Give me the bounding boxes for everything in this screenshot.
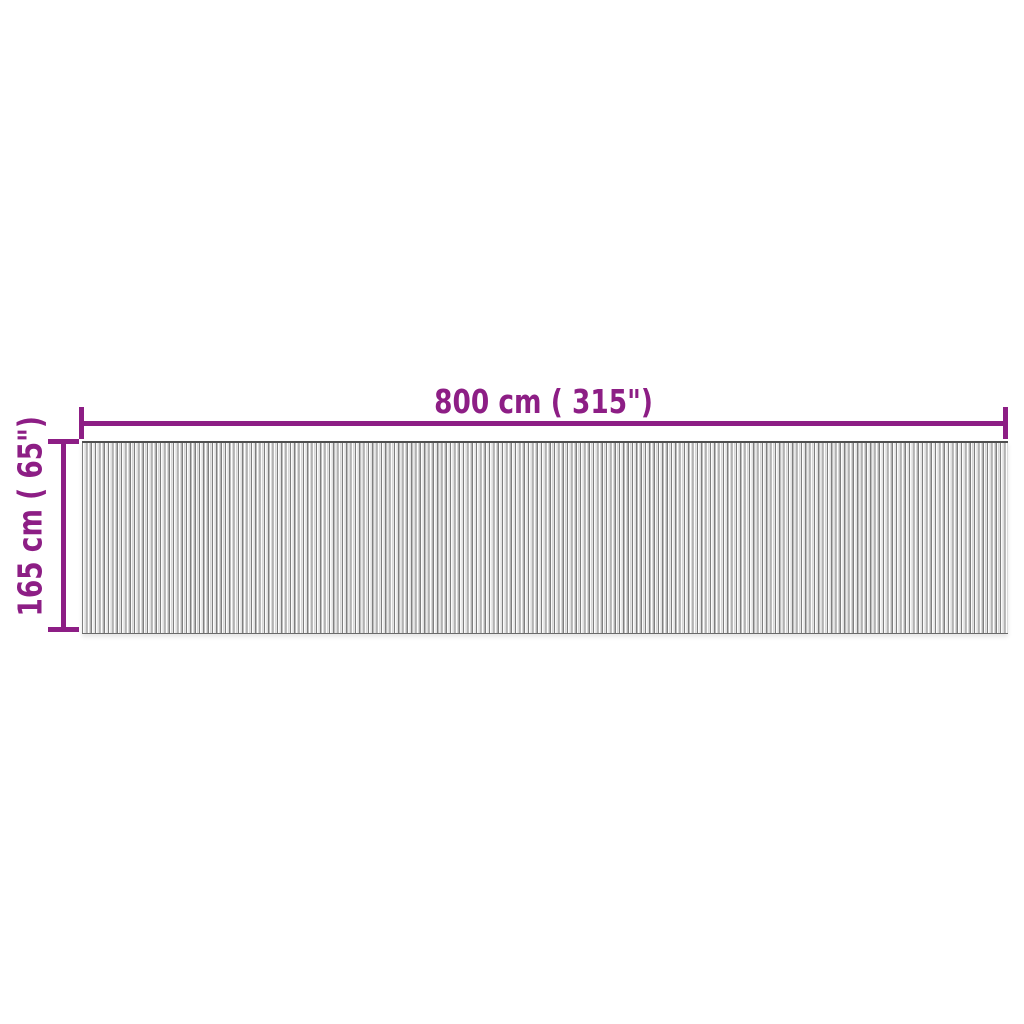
height-dimension-top-tick: [48, 439, 79, 444]
width-dimension-right-tick: [1003, 407, 1008, 439]
width-dimension-line: [81, 421, 1006, 426]
width-dimension-left-tick: [79, 407, 84, 439]
height-dimension-label: 165 cm ( 65"): [14, 457, 47, 617]
width-dimension-label: 800 cm ( 315"): [174, 385, 914, 418]
height-dimension-bottom-tick: [48, 627, 79, 632]
dimension-diagram: 800 cm ( 315") 165 cm ( 65"): [0, 0, 1024, 1024]
product-dimension-screenshot: { "diagram": { "description": "top-view …: [0, 0, 1024, 1024]
mat-product-image: [82, 441, 1008, 634]
height-dimension-line: [61, 441, 66, 631]
